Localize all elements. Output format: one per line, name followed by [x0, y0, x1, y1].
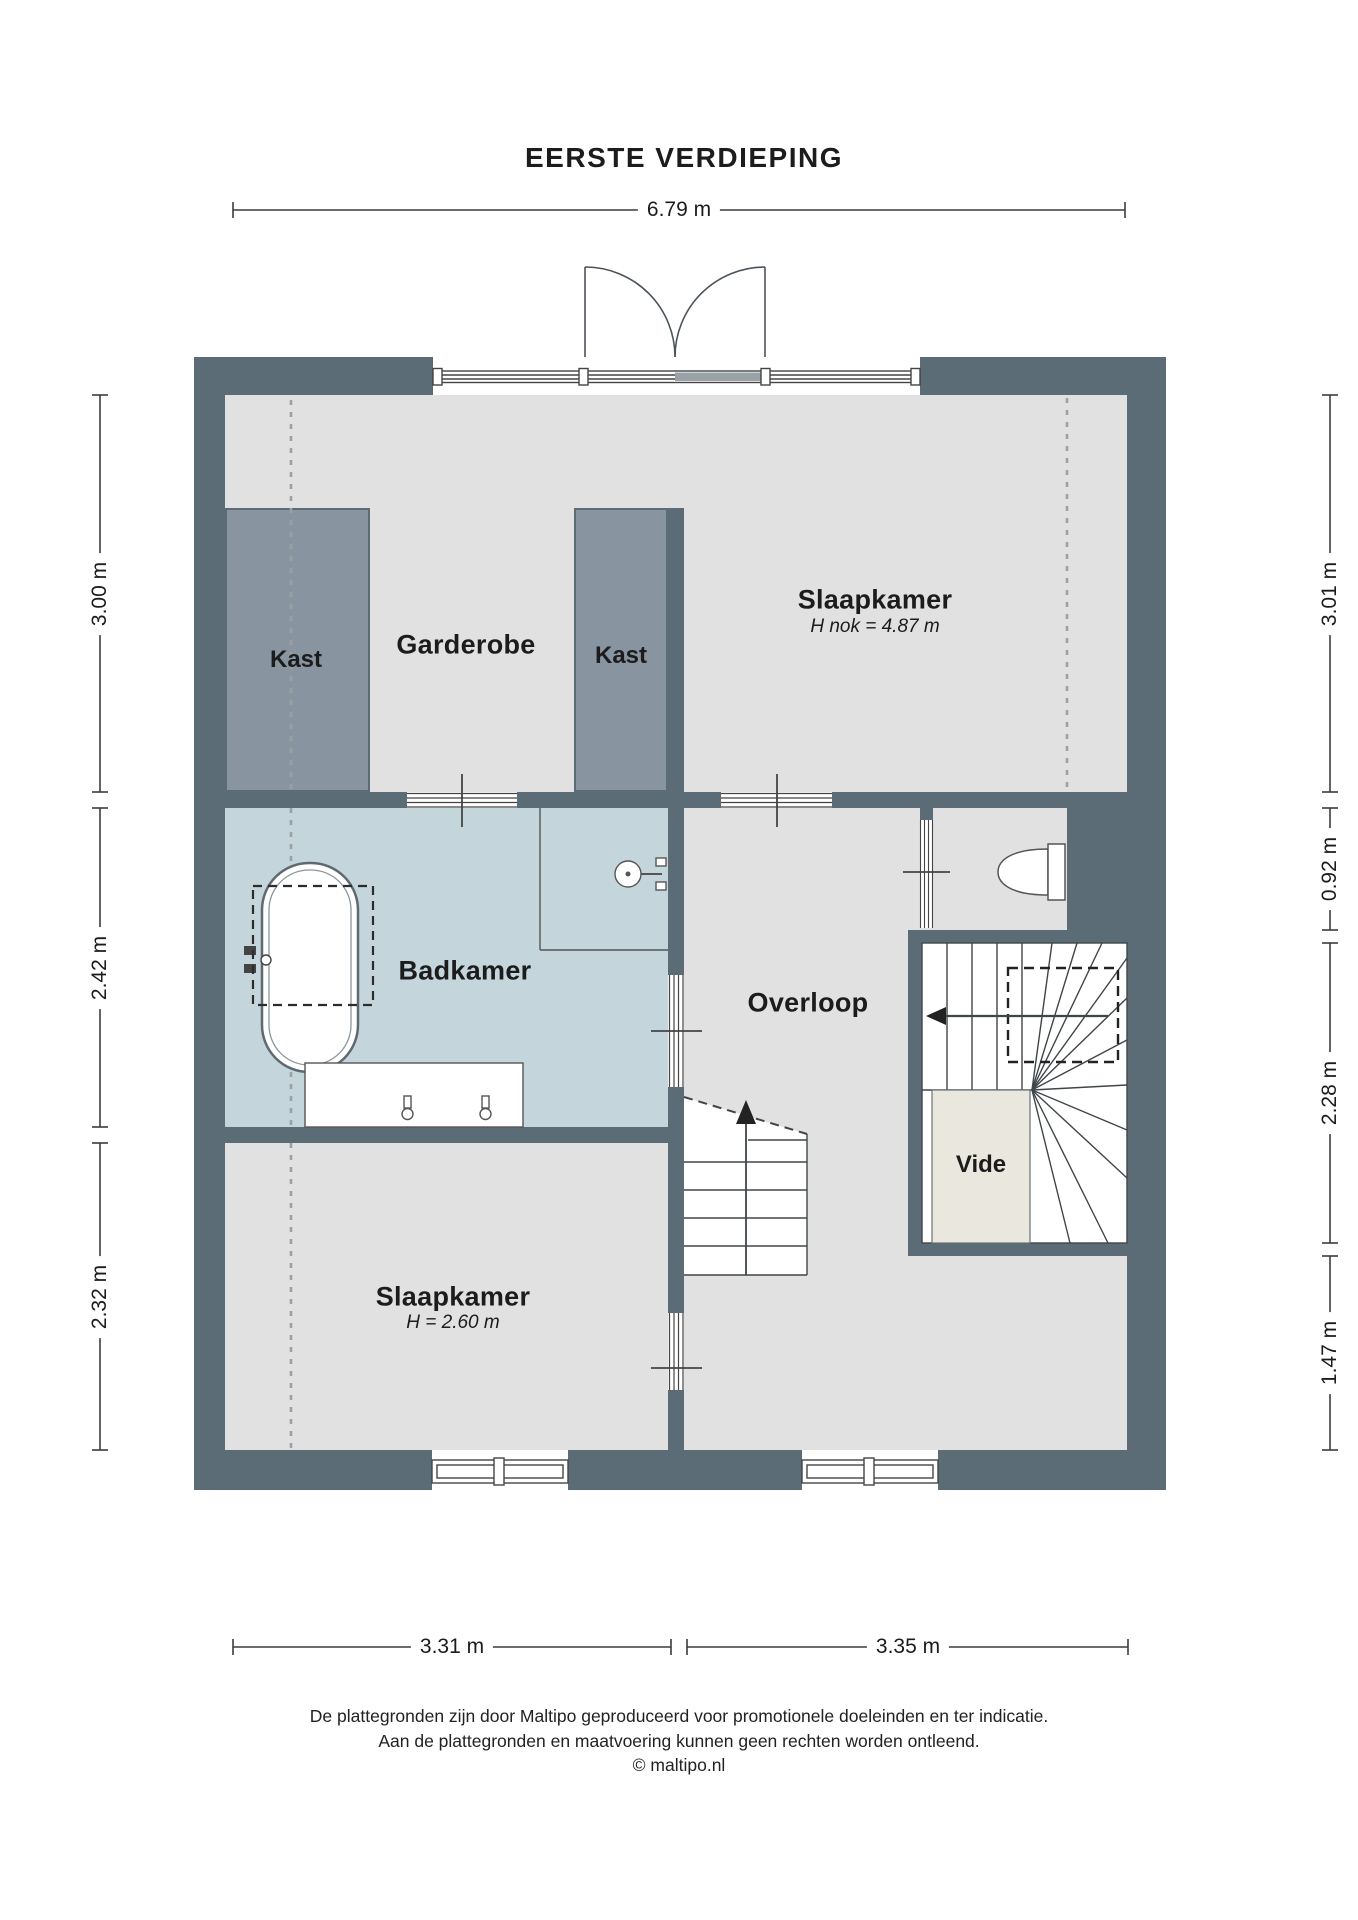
dim-right-4: 1.47 m — [1318, 1312, 1342, 1394]
room-label-kast-right: Kast — [595, 642, 647, 670]
room-label-overloop: Overloop — [748, 988, 869, 1019]
french-doors-icon — [585, 267, 765, 357]
dim-right-3: 2.28 m — [1318, 1052, 1342, 1134]
room-note-slaapkamer-top: H nok = 4.87 m — [810, 616, 939, 638]
dim-left-1: 3.00 m — [88, 553, 112, 635]
dim-left-3: 2.32 m — [88, 1256, 112, 1338]
toilet-icon — [998, 844, 1065, 900]
dim-bottom-right: 3.35 m — [867, 1635, 949, 1659]
window-bottom-right-icon — [802, 1458, 938, 1485]
dim-bottom-left: 3.31 m — [411, 1635, 493, 1659]
footer-copyright: © maltipo.nl — [0, 1755, 1358, 1776]
vanity-icon — [305, 1063, 523, 1127]
sliding-door-badkamer-icon — [651, 975, 702, 1087]
sliding-door-slaapkamer-bottom-icon — [651, 1313, 702, 1390]
staircase-upper-icon — [922, 943, 1127, 1243]
window-top-icon — [433, 369, 920, 386]
room-label-kast-left: Kast — [270, 646, 322, 674]
room-label-slaapkamer-top: Slaapkamer — [798, 585, 953, 616]
footer-disclaimer-2: Aan de plattegronden en maatvoering kunn… — [0, 1731, 1358, 1752]
staircase-lower-icon — [684, 1097, 807, 1275]
footer-disclaimer-1: De plattegronden zijn door Maltipo gepro… — [0, 1706, 1358, 1727]
sliding-door-garderobe-icon — [407, 774, 517, 827]
room-label-garderobe: Garderobe — [396, 630, 535, 661]
room-label-vide: Vide — [956, 1151, 1006, 1179]
shower-icon — [540, 808, 668, 950]
dim-right-2: 0.92 m — [1318, 828, 1342, 910]
room-note-slaapkamer-bottom: H = 2.60 m — [406, 1312, 499, 1334]
bathtub-icon — [244, 863, 373, 1072]
dim-right-1: 3.01 m — [1318, 553, 1342, 635]
sliding-door-slaapkamer-icon — [721, 774, 832, 827]
window-bottom-left-icon — [432, 1458, 568, 1485]
dim-top: 6.79 m — [638, 198, 720, 222]
room-label-slaapkamer-bottom: Slaapkamer — [376, 1282, 531, 1313]
sliding-door-toilet-icon — [903, 820, 950, 928]
floor-plan-linework — [0, 0, 1358, 1920]
dim-left-2: 2.42 m — [88, 927, 112, 1009]
room-label-badkamer: Badkamer — [399, 956, 532, 987]
floor-plan-page: EERSTE VERDIEPING — [0, 0, 1358, 1920]
